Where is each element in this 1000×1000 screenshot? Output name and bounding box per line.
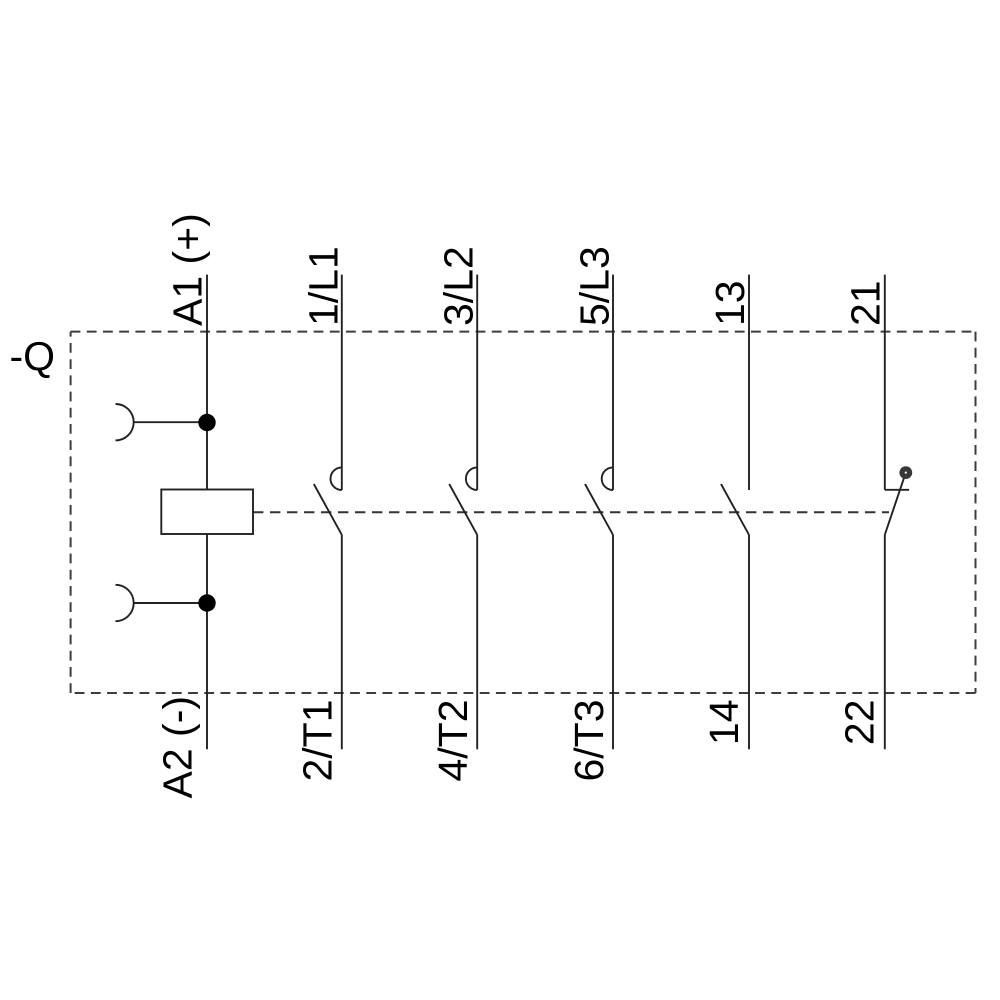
svg-text:22: 22	[837, 700, 883, 746]
svg-text:1/L1: 1/L1	[300, 246, 346, 326]
svg-text:5/L3: 5/L3	[572, 246, 618, 326]
svg-text:21: 21	[842, 280, 888, 326]
svg-text:4/T2: 4/T2	[430, 700, 476, 782]
svg-text:14: 14	[701, 700, 747, 746]
svg-text:-Q: -Q	[10, 333, 56, 379]
svg-text:6/T3: 6/T3	[566, 700, 612, 782]
svg-text:13: 13	[707, 280, 753, 326]
svg-text:A2 (-): A2 (-)	[155, 696, 201, 799]
svg-text:3/L2: 3/L2	[436, 246, 482, 326]
svg-text:A1 (+): A1 (+)	[165, 213, 211, 326]
svg-text:2/T1: 2/T1	[295, 700, 341, 782]
